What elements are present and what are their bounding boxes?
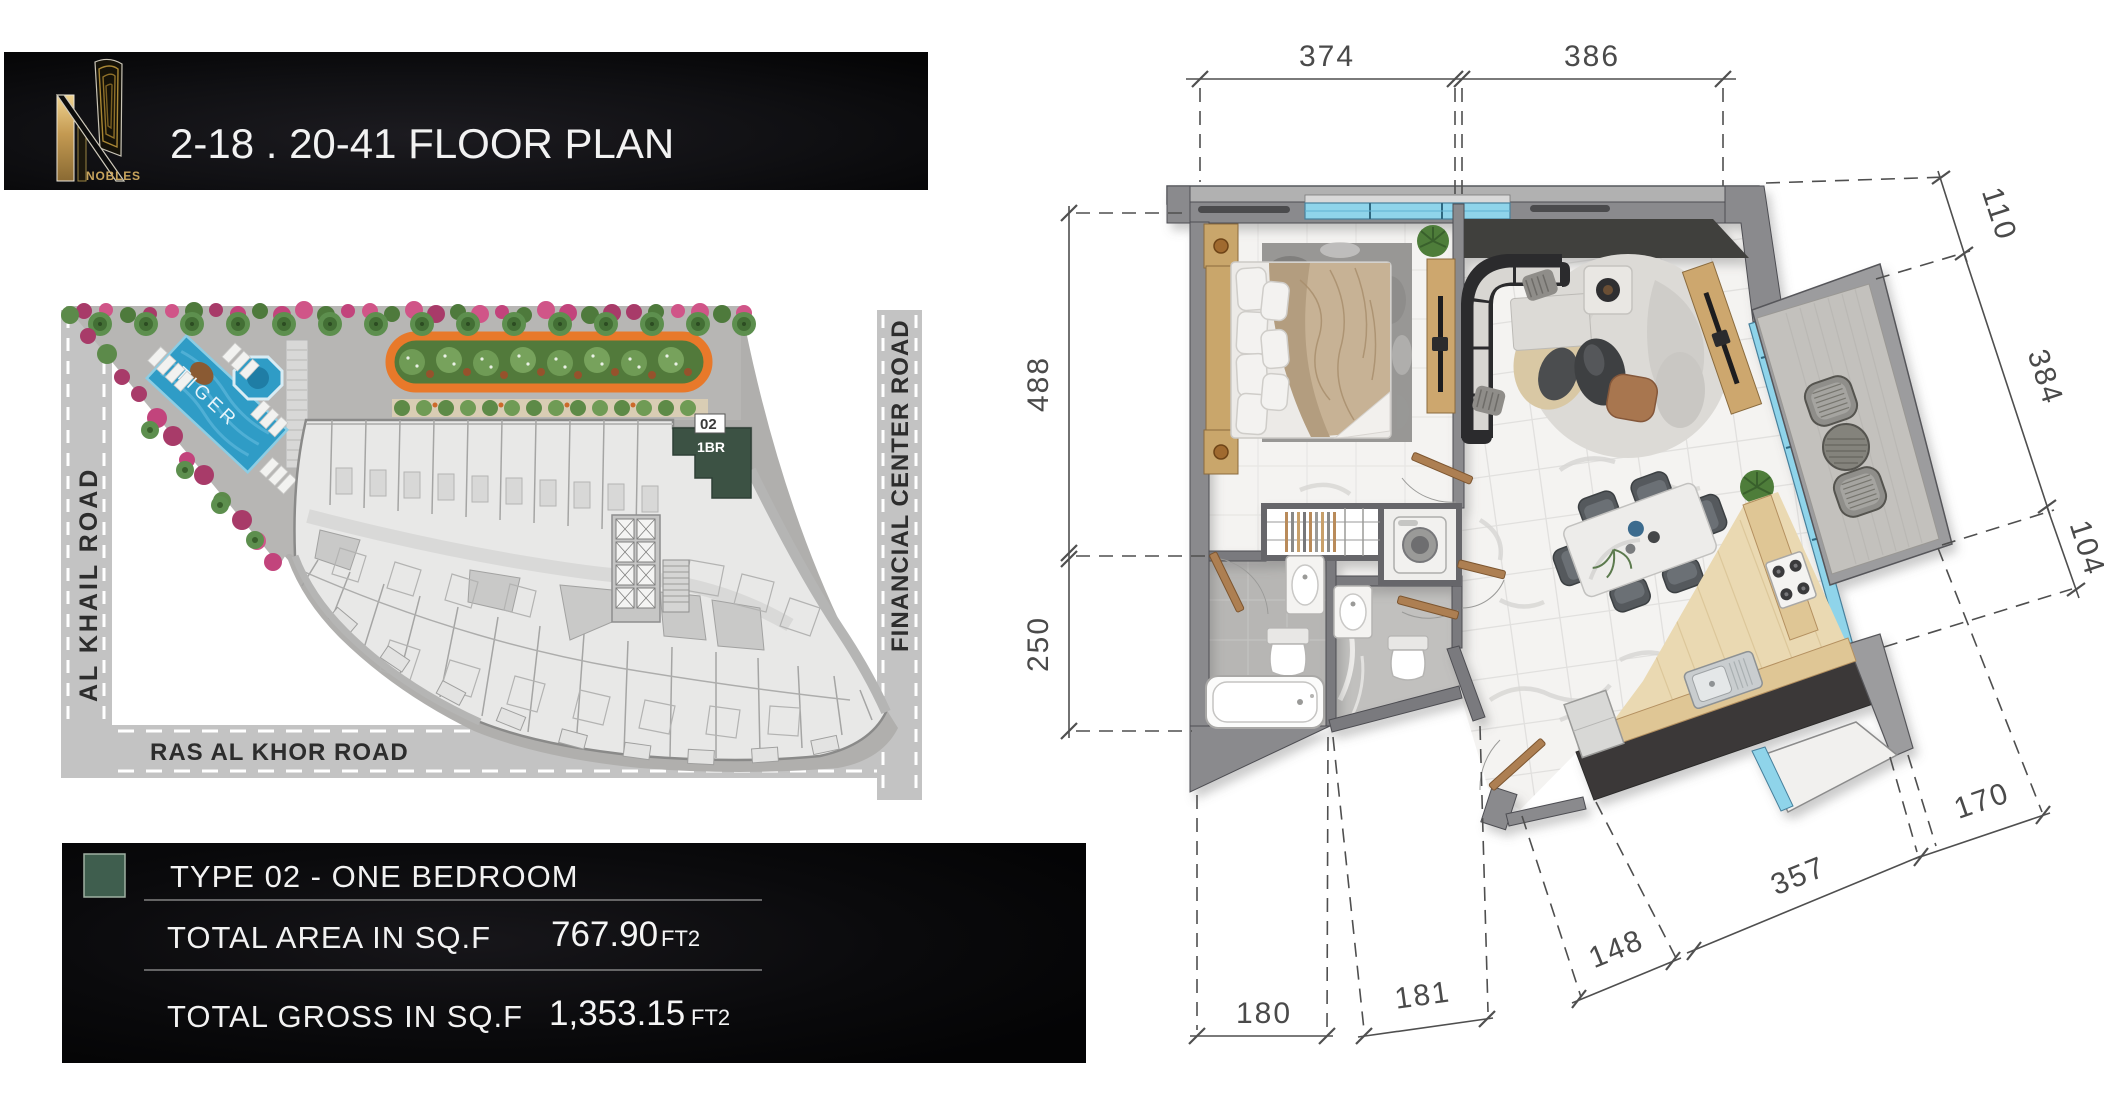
svg-text:FINANCIAL CENTER ROAD: FINANCIAL CENTER ROAD bbox=[887, 319, 914, 652]
svg-text:180: 180 bbox=[1236, 997, 1292, 1030]
svg-text:374: 374 bbox=[1299, 40, 1355, 73]
svg-text:TOTAL GROSS IN SQ.F: TOTAL GROSS IN SQ.F bbox=[167, 999, 523, 1034]
svg-text:1BR: 1BR bbox=[697, 439, 725, 455]
svg-text:AL KHAIL ROAD: AL KHAIL ROAD bbox=[75, 467, 103, 702]
svg-text:2-18 . 20-41 FLOOR PLAN: 2-18 . 20-41 FLOOR PLAN bbox=[170, 120, 674, 167]
svg-text:TYPE 02 - ONE BEDROOM: TYPE 02 - ONE BEDROOM bbox=[170, 859, 579, 894]
svg-text:386: 386 bbox=[1564, 40, 1620, 73]
svg-text:FT2: FT2 bbox=[661, 926, 700, 951]
svg-text:RAS AL KHOR ROAD: RAS AL KHOR ROAD bbox=[150, 739, 409, 766]
svg-text:1,353.15: 1,353.15 bbox=[549, 994, 685, 1033]
svg-text:02: 02 bbox=[700, 416, 717, 433]
svg-text:250: 250 bbox=[1022, 616, 1055, 672]
svg-text:TOTAL AREA IN SQ.F: TOTAL AREA IN SQ.F bbox=[167, 920, 491, 955]
svg-text:FT2: FT2 bbox=[691, 1005, 730, 1030]
svg-text:NOBLES: NOBLES bbox=[86, 169, 141, 183]
svg-text:767.90: 767.90 bbox=[551, 915, 658, 954]
svg-text:488: 488 bbox=[1022, 356, 1055, 412]
